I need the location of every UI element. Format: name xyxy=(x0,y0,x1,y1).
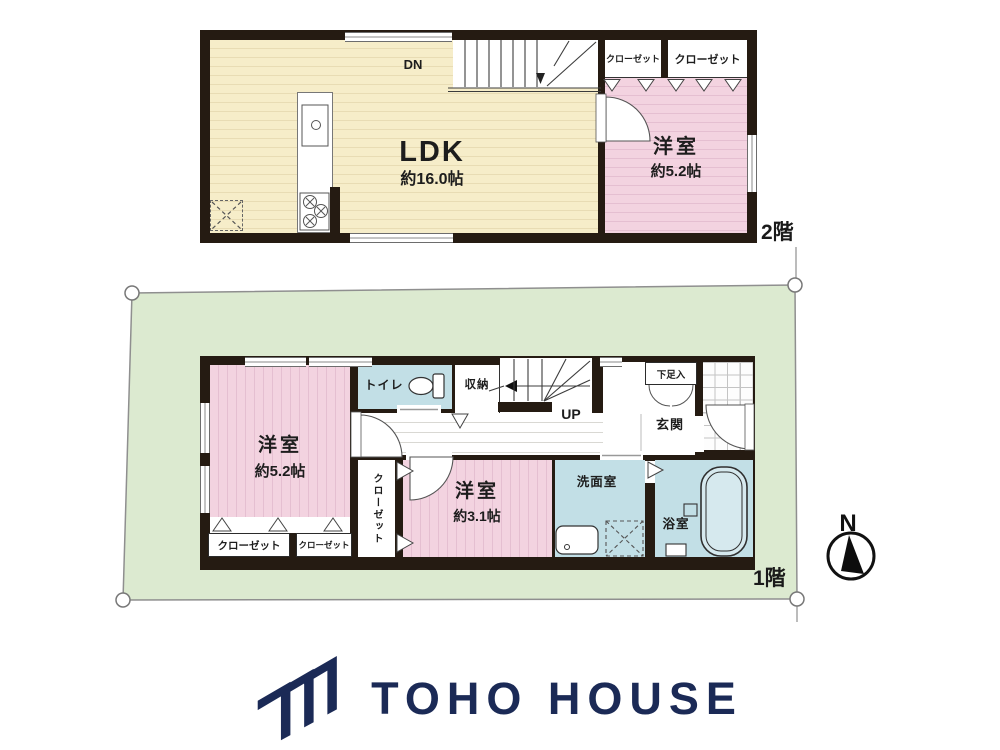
floor1-closet-vertical: クローゼット xyxy=(358,460,395,557)
floor1-bedroom-small-area: 約3.1帖 xyxy=(453,509,500,523)
floor1-tag: 1階 xyxy=(753,562,786,592)
window xyxy=(350,233,453,243)
washroom-label: 洗面室 xyxy=(577,476,618,489)
kitchen-wall-stub xyxy=(330,187,340,233)
ldk-area: 約16.0帖 xyxy=(400,172,463,188)
floor2-plan: クローゼット クローゼット LDK 約16.0帖 洋室 約5.2帖 DN xyxy=(200,30,757,243)
window xyxy=(345,32,452,42)
kitchen-counter xyxy=(297,92,333,233)
window xyxy=(747,135,757,192)
compass-north-label: N xyxy=(839,510,856,537)
window xyxy=(200,403,210,453)
footer: TOHO HOUSE xyxy=(0,650,1000,748)
floor2-bedroom-name: 洋室 xyxy=(653,137,699,157)
window xyxy=(600,357,622,367)
stairs-bottom-wall xyxy=(498,402,552,412)
bathroom-label: 浴室 xyxy=(662,518,689,531)
window xyxy=(309,357,372,367)
toho-house-logo-icon xyxy=(257,656,341,742)
closet-door-strip xyxy=(210,517,350,533)
floor1-plan: クローゼット クローゼット 下足入 クローゼット 洋室 約5.2帖 洋室 約3.… xyxy=(200,356,755,570)
compass-icon: N xyxy=(828,510,874,579)
refrigerator-space xyxy=(210,200,243,231)
floor2-tag: 2階 xyxy=(761,216,794,246)
floor1-bedroom-large-name: 洋室 xyxy=(258,436,302,455)
toilet-label: トイレ xyxy=(364,379,403,391)
storage-label: 収納 xyxy=(465,380,490,392)
floor2-closet-right: クローゼット xyxy=(668,40,747,78)
floor2-closet-left: クローゼット xyxy=(605,40,661,78)
shoe-cabinet: 下足入 xyxy=(645,362,697,385)
floor2-stairs xyxy=(453,40,598,88)
bathroom-room xyxy=(655,460,753,557)
floor1-bedroom-large-area: 約5.2帖 xyxy=(255,464,306,479)
hallway xyxy=(358,413,640,455)
window xyxy=(200,466,210,513)
stairs-down-label: DN xyxy=(404,58,423,71)
entrance-label: 玄関 xyxy=(656,418,684,431)
floor2-bedroom-area: 約5.2帖 xyxy=(651,164,702,179)
floor1-bedroom-small-name: 洋室 xyxy=(455,482,499,501)
ldk-name: LDK xyxy=(399,138,465,167)
brand-name: TOHO HOUSE xyxy=(371,673,743,725)
window xyxy=(245,357,306,367)
entrance-tile-floor xyxy=(703,362,753,450)
floor1-closet-left: クローゼット xyxy=(208,533,290,557)
floor1-closet-right: クローゼット xyxy=(296,533,352,557)
stairs-up-label: UP xyxy=(561,407,580,421)
